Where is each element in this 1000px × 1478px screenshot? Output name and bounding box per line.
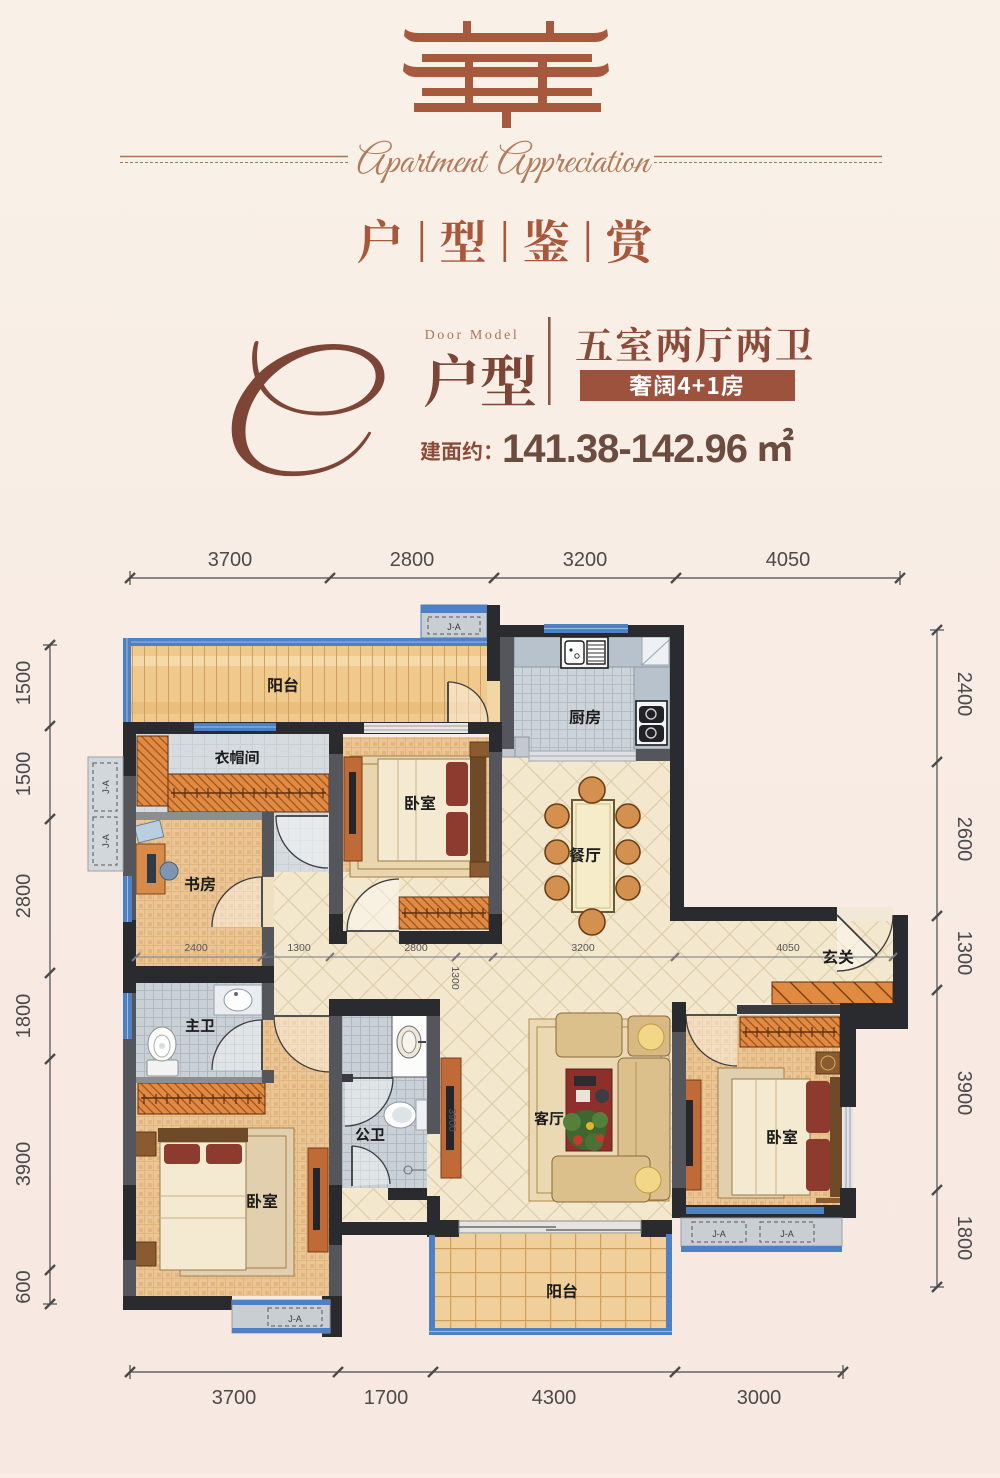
svg-text:J-A: J-A	[447, 622, 461, 632]
svg-text:3200: 3200	[563, 549, 608, 571]
svg-text:4050: 4050	[766, 549, 811, 571]
svg-text:600: 600	[13, 1270, 35, 1303]
svg-text:3200: 3200	[571, 942, 595, 954]
svg-text:1800: 1800	[13, 994, 35, 1039]
svg-text:4050: 4050	[776, 942, 800, 954]
svg-text:1300: 1300	[449, 966, 461, 990]
svg-text:2400: 2400	[953, 672, 975, 717]
svg-text:J-A: J-A	[101, 780, 111, 794]
svg-text:Door Model: Door Model	[425, 328, 520, 343]
svg-text:J-A: J-A	[101, 834, 111, 848]
svg-text:2800: 2800	[390, 549, 435, 571]
svg-text:1700: 1700	[364, 1387, 409, 1409]
svg-text:J-A: J-A	[288, 1314, 302, 1324]
svg-text:3900: 3900	[13, 1142, 35, 1187]
svg-text:1500: 1500	[13, 752, 35, 797]
svg-text:2400: 2400	[184, 942, 208, 954]
svg-text:1500: 1500	[13, 661, 35, 706]
svg-text:141.38-142.96: 141.38-142.96	[502, 427, 747, 471]
svg-text:3900: 3900	[446, 1108, 458, 1132]
svg-text:2600: 2600	[953, 817, 975, 862]
svg-text:3000: 3000	[737, 1387, 782, 1409]
svg-text:3700: 3700	[212, 1387, 257, 1409]
svg-text:2800: 2800	[404, 942, 428, 954]
svg-text:1300: 1300	[953, 931, 975, 976]
svg-text:3900: 3900	[953, 1071, 975, 1116]
svg-text:J-A: J-A	[712, 1229, 726, 1239]
svg-text:2800: 2800	[13, 874, 35, 919]
svg-text:3700: 3700	[208, 549, 253, 571]
svg-text:1300: 1300	[287, 942, 311, 954]
svg-text:J-A: J-A	[780, 1229, 794, 1239]
svg-text:1800: 1800	[953, 1216, 975, 1261]
svg-text:4300: 4300	[532, 1387, 577, 1409]
